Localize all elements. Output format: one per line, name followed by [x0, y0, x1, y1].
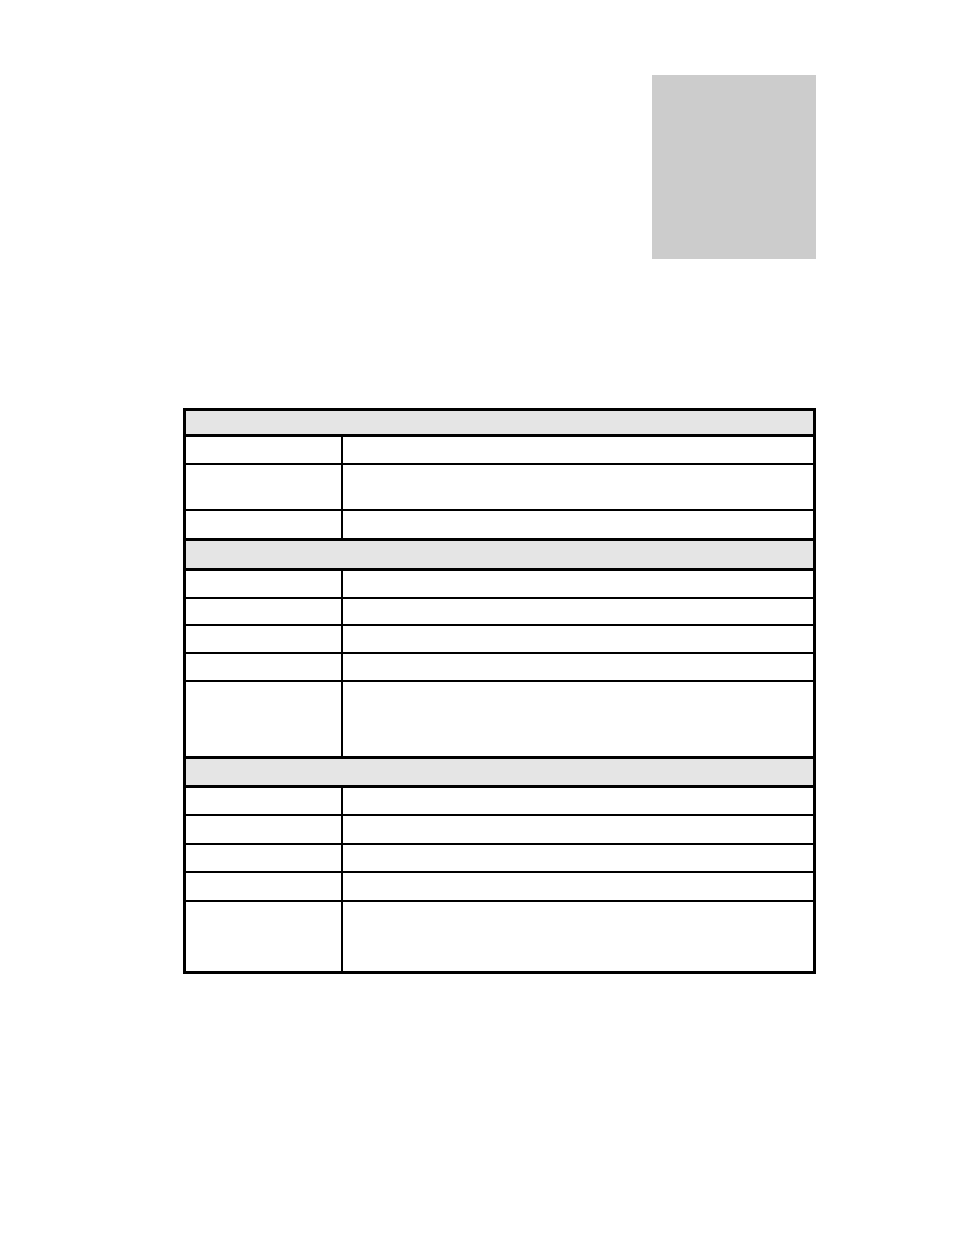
row-value-cell: [342, 681, 815, 758]
section-3-header-cell: [185, 758, 815, 787]
row-label-cell: [185, 901, 342, 973]
row-value-cell: [342, 625, 815, 653]
row-label-cell: [185, 872, 342, 901]
row-value-cell: [342, 901, 815, 973]
section-1-header-cell: [185, 410, 815, 436]
row-label-cell: [185, 681, 342, 758]
table-row: [185, 681, 815, 758]
table-row: [185, 872, 815, 901]
row-label-cell: [185, 625, 342, 653]
row-value-cell: [342, 844, 815, 872]
table-row: [185, 653, 815, 681]
chapter-tab-placeholder-box: [652, 75, 816, 259]
row-value-cell: [342, 436, 815, 464]
row-value-cell: [342, 510, 815, 540]
table-row: [185, 464, 815, 510]
section-1-header-row: [185, 410, 815, 436]
document-page: [0, 0, 954, 1235]
section-2-header-cell: [185, 540, 815, 570]
row-value-cell: [342, 787, 815, 815]
table-row: [185, 844, 815, 872]
row-label-cell: [185, 510, 342, 540]
section-3-header-row: [185, 758, 815, 787]
row-value-cell: [342, 598, 815, 625]
section-2-header-row: [185, 540, 815, 570]
table-row: [185, 901, 815, 973]
table-row: [185, 815, 815, 844]
row-label-cell: [185, 598, 342, 625]
row-label-cell: [185, 464, 342, 510]
row-label-cell: [185, 570, 342, 598]
row-label-cell: [185, 844, 342, 872]
row-value-cell: [342, 815, 815, 844]
row-label-cell: [185, 436, 342, 464]
spec-form-table: [183, 408, 816, 974]
row-value-cell: [342, 570, 815, 598]
table-row: [185, 570, 815, 598]
row-value-cell: [342, 872, 815, 901]
row-value-cell: [342, 653, 815, 681]
table-row: [185, 436, 815, 464]
row-label-cell: [185, 653, 342, 681]
table-row: [185, 510, 815, 540]
row-label-cell: [185, 815, 342, 844]
table-row: [185, 625, 815, 653]
row-value-cell: [342, 464, 815, 510]
row-label-cell: [185, 787, 342, 815]
table-row: [185, 598, 815, 625]
table-row: [185, 787, 815, 815]
